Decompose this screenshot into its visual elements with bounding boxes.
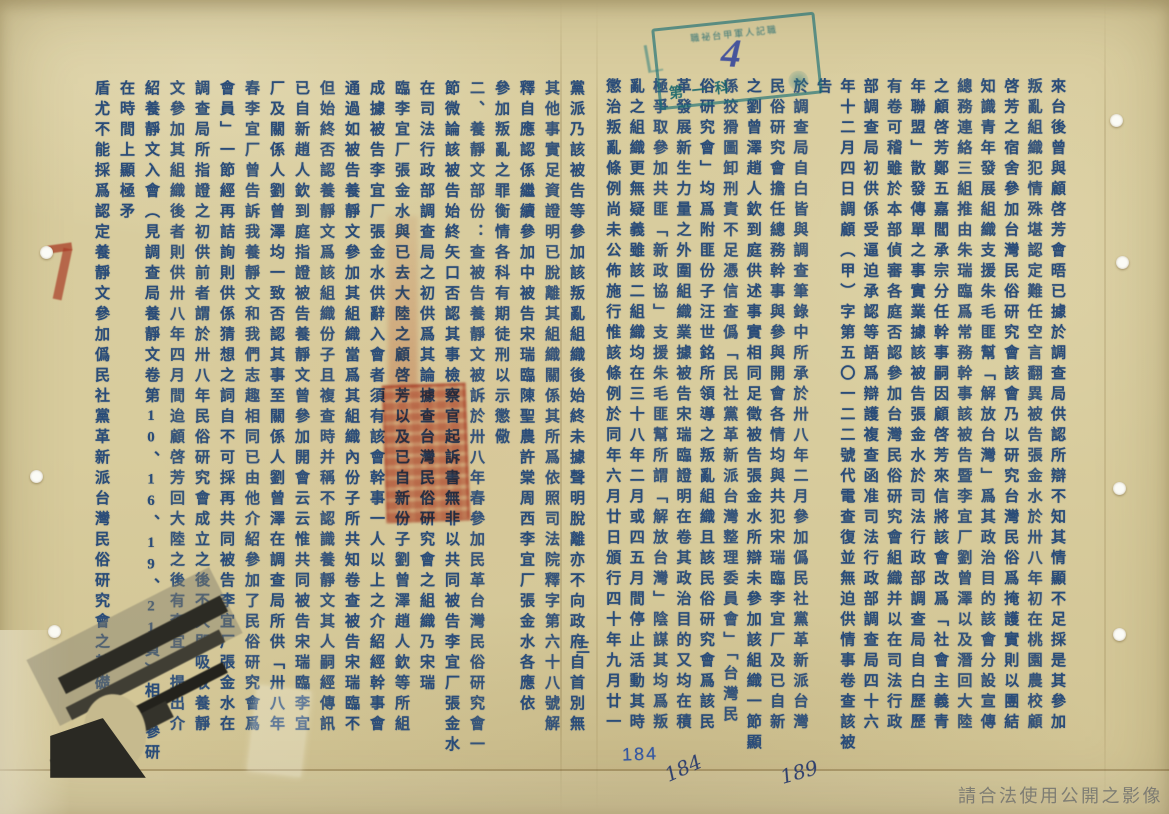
text-column: 厂及關係人劉曾澤均一致否認其事至關係人劉曾澤在調查局所供「卅八年 (263, 80, 288, 774)
text-column: 亂之組織更無疑義雖該二組織均在三十八年二月或四五月間停止活動其時 (623, 78, 646, 772)
document-scan: 來台後曾與顧啓芳會晤已據於調查局供認所辯不知其情顯不足採是其參加叛亂組織犯情殊堪… (0, 0, 1169, 814)
text-column: 有卷可稽雖於本部偵審各庭否認參加台灣民俗研究會組織并以在司法行政 (881, 78, 904, 772)
stamp-ink-blob (787, 70, 809, 92)
text-column: 知識青年發展組織支援朱毛匪幫「解放台灣」爲其政治目的該會分設宣傳 (974, 78, 997, 772)
stamp-handwritten-number: 4 (720, 29, 742, 77)
red-margin-mark-stroke (53, 248, 73, 301)
punch-hole (1116, 256, 1129, 269)
text-column: 部調查局初供係受逼迫承認等語爲辯護複查函准司法行政部調查局四十六 (857, 78, 880, 772)
red-ink-smear (388, 216, 418, 388)
tape-patch (247, 685, 311, 777)
text-column: 年十二月四日調顧（甲）字第五〇一二二號代電查復並無迫供情事卷查該被告 (811, 78, 858, 772)
punch-hole (1110, 114, 1123, 127)
text-column: 民俗研究會擔任總務幹事與參與開會各情均與共犯宋瑞臨李宜厂及已自新 (764, 78, 787, 772)
punch-hole (40, 246, 53, 259)
text-column: 革發展新生力量之外圍組織業據被告宋瑞臨證明在卷其政治目的又均在積 (670, 78, 693, 772)
fold-crease (596, 0, 598, 814)
text-column: 極爭取參加共匪「新政協」支援朱毛匪幫所謂「解放台灣」陰謀其均爲叛 (647, 78, 670, 772)
center-fold-crease (560, 0, 562, 814)
text-column: 春李宜厂曾告訴我養靜文和我們志趣相同已由他介紹參加了民俗研究會爲 (238, 80, 263, 774)
text-column: 俗研究會」均爲附匪份子汪世銘所領導之叛亂組織且該民俗研究會爲該民 (694, 78, 717, 772)
text-column: 已自新趙人欽到庭指證被告養靜文曾參加開會云云惟共同被告宋瑞臨李宜 (288, 80, 313, 774)
red-seal (382, 383, 471, 524)
page-right-text: 來台後曾與顧啓芳會晤已據於調查局供認所辯不知其情顯不足採是其參加叛亂組織犯情殊堪… (600, 78, 1068, 772)
text-column: 之劉曾澤趙人欽到庭供述事實相同足徵被告張金水所辯未參加該組織一節顯 (740, 78, 763, 772)
archive-watermark: 請合法使用公開之影像 (958, 782, 1163, 808)
punch-hole (1113, 482, 1126, 495)
text-column: 通過如被告養靜文參加其組織當爲其組織內份子所共知卷查被告宋瑞臨不 (338, 80, 363, 774)
text-column: 來台後曾與顧啓芳會晤已據於調查局供認所辯不知其情顯不足採是其參加 (1045, 78, 1068, 772)
punch-hole (1113, 628, 1126, 641)
stamp-section-text: 第一科 (668, 76, 739, 103)
text-column: 釋自應認係繼續參加中被告宋瑞臨陳聖農許棠周西李宜厂張金水各應依 (513, 80, 538, 774)
text-column: 但始終否認養靜文爲該組織份子且複查時并稱不認識養靜文其人嗣經傳訊 (313, 80, 338, 774)
text-column: 啓芳之宿舍參加台灣民俗研究會該會乃以研究台灣民俗爲掩護實則以團結 (998, 78, 1021, 772)
text-column: 叛亂組織犯情殊堪認定難任空言翻異被告張金水於卅八年初在桃園農校顧 (1021, 78, 1044, 772)
text-column: 係狡猾圖卸刑責不足憑信查僞「民社黨革新派台灣整理委員會」「台灣民 (717, 78, 740, 772)
text-column: 年聯盟」散發傳單之事實業據該被告張金水於司法行政部調查局自白歷歷 (904, 78, 927, 772)
edge-crease (1104, 0, 1106, 814)
folio-number: 三 (571, 640, 591, 654)
receiving-stamp: 職祕台甲軍人記職 4 第一科 (651, 12, 823, 111)
punch-hole (30, 470, 43, 483)
text-column: 於調查局自白皆與調查筆錄中所承於卅八年二月參加僞民社黨革新派台灣 (787, 78, 810, 772)
text-column: 總務連絡三組推由朱瑞臨爲常務幹事該被告暨李宜厂劉曾澤以及潛回大陸 (951, 78, 974, 772)
text-column: 懲治叛亂條例尚未公佈施行惟該條例於同年六月廿日頒行四十年九月廿一 (600, 78, 623, 772)
printed-archive-number: 184 (622, 743, 659, 765)
text-column: 黨派乃該被告等參加該叛亂組織後始終未據聲明脫離亦不向政府自首別無 (563, 80, 588, 774)
text-column: 參加叛亂之罪衡情各科有期徒刑以示懲儆 (488, 80, 513, 774)
text-column: 之顧啓芳鄭五嘉閻承宗分任幹事嗣因顧啓芳來信將該會改爲「社會主義青 (928, 78, 951, 772)
